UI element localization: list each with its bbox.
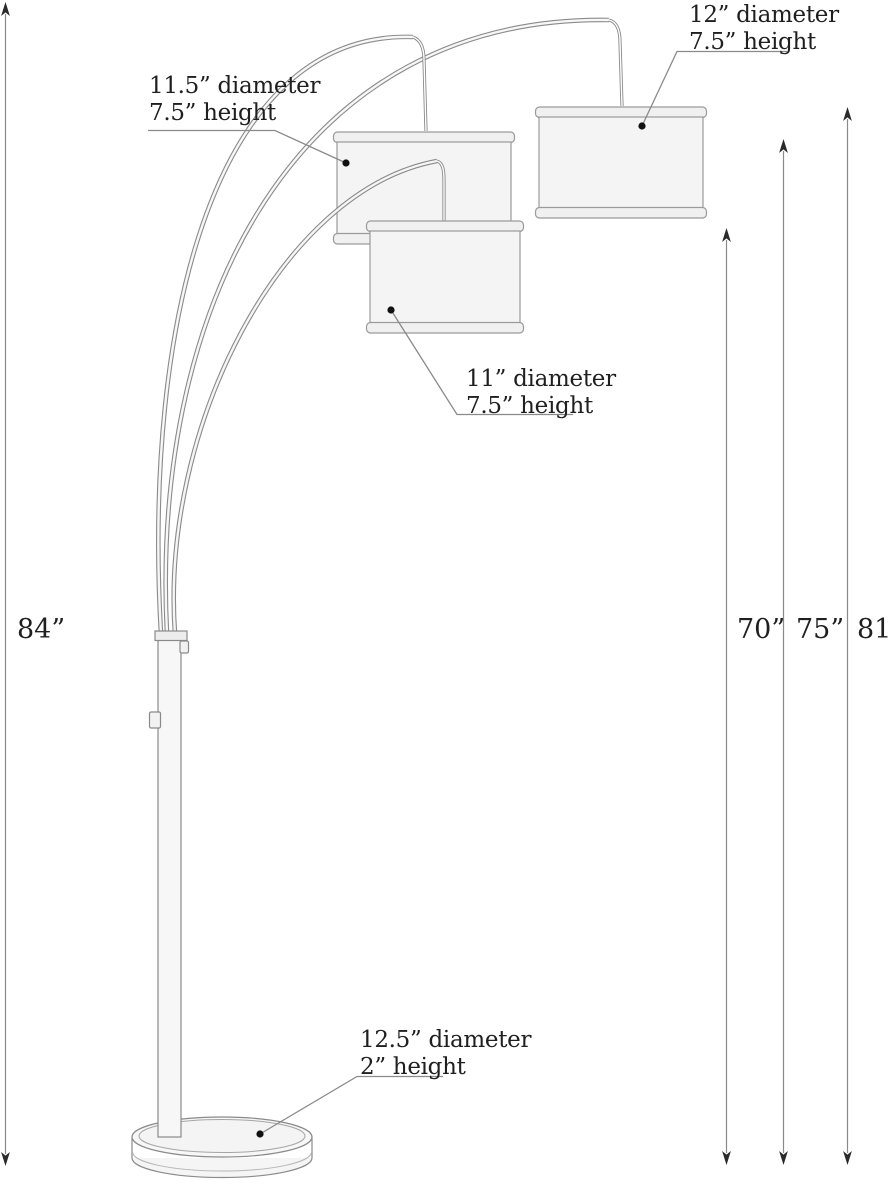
annotation-line1: 11.5” diameter: [149, 73, 320, 100]
annotation-line2: 7.5” height: [149, 100, 320, 127]
lamp-shade-front: [367, 221, 524, 333]
height-label-81: 81”: [857, 616, 888, 644]
annotation-line1: 12.5” diameter: [360, 1027, 531, 1054]
arrow-up-icon: [1, 2, 10, 16]
height-label-70: 70”: [737, 616, 785, 644]
annotation-line2: 2” height: [360, 1054, 531, 1081]
arrow-down-icon: [779, 1151, 788, 1165]
leader-dot: [256, 1130, 263, 1137]
arrow-up-icon: [779, 139, 788, 153]
annotation-line2: 7.5” height: [466, 393, 616, 420]
annotation-line1: 12” diameter: [689, 2, 839, 29]
annotation-right-shade: 12” diameter 7.5” height: [689, 2, 839, 56]
arrow-up-icon: [843, 107, 852, 121]
arrow-up-icon: [722, 228, 731, 242]
annotation-line2: 7.5” height: [689, 29, 839, 56]
annotation-line1: 11” diameter: [466, 366, 616, 393]
annotation-left-shade: 11.5” diameter 7.5” height: [149, 73, 320, 127]
annotation-base: 12.5” diameter 2” height: [360, 1027, 531, 1081]
pole-knob: [150, 712, 161, 728]
floor-lamp-dimension-diagram: 11.5” diameter 7.5” height 12” diameter …: [0, 0, 888, 1185]
arrow-down-icon: [1, 1152, 10, 1166]
arrow-down-icon: [722, 1151, 731, 1165]
pole-switch: [180, 641, 189, 653]
leader-dot: [342, 159, 349, 166]
leader-dot: [387, 306, 394, 313]
lamp-shade-right: [536, 107, 707, 218]
arrow-down-icon: [843, 1151, 852, 1165]
leader-dot: [638, 122, 645, 129]
annotation-front-shade: 11” diameter 7.5” height: [466, 366, 616, 420]
height-label-75: 75”: [796, 616, 844, 644]
pole-collar: [155, 631, 187, 641]
lamp-line-art: [0, 0, 888, 1185]
lamp-pole: [150, 631, 189, 1137]
height-label-84: 84”: [17, 616, 65, 644]
